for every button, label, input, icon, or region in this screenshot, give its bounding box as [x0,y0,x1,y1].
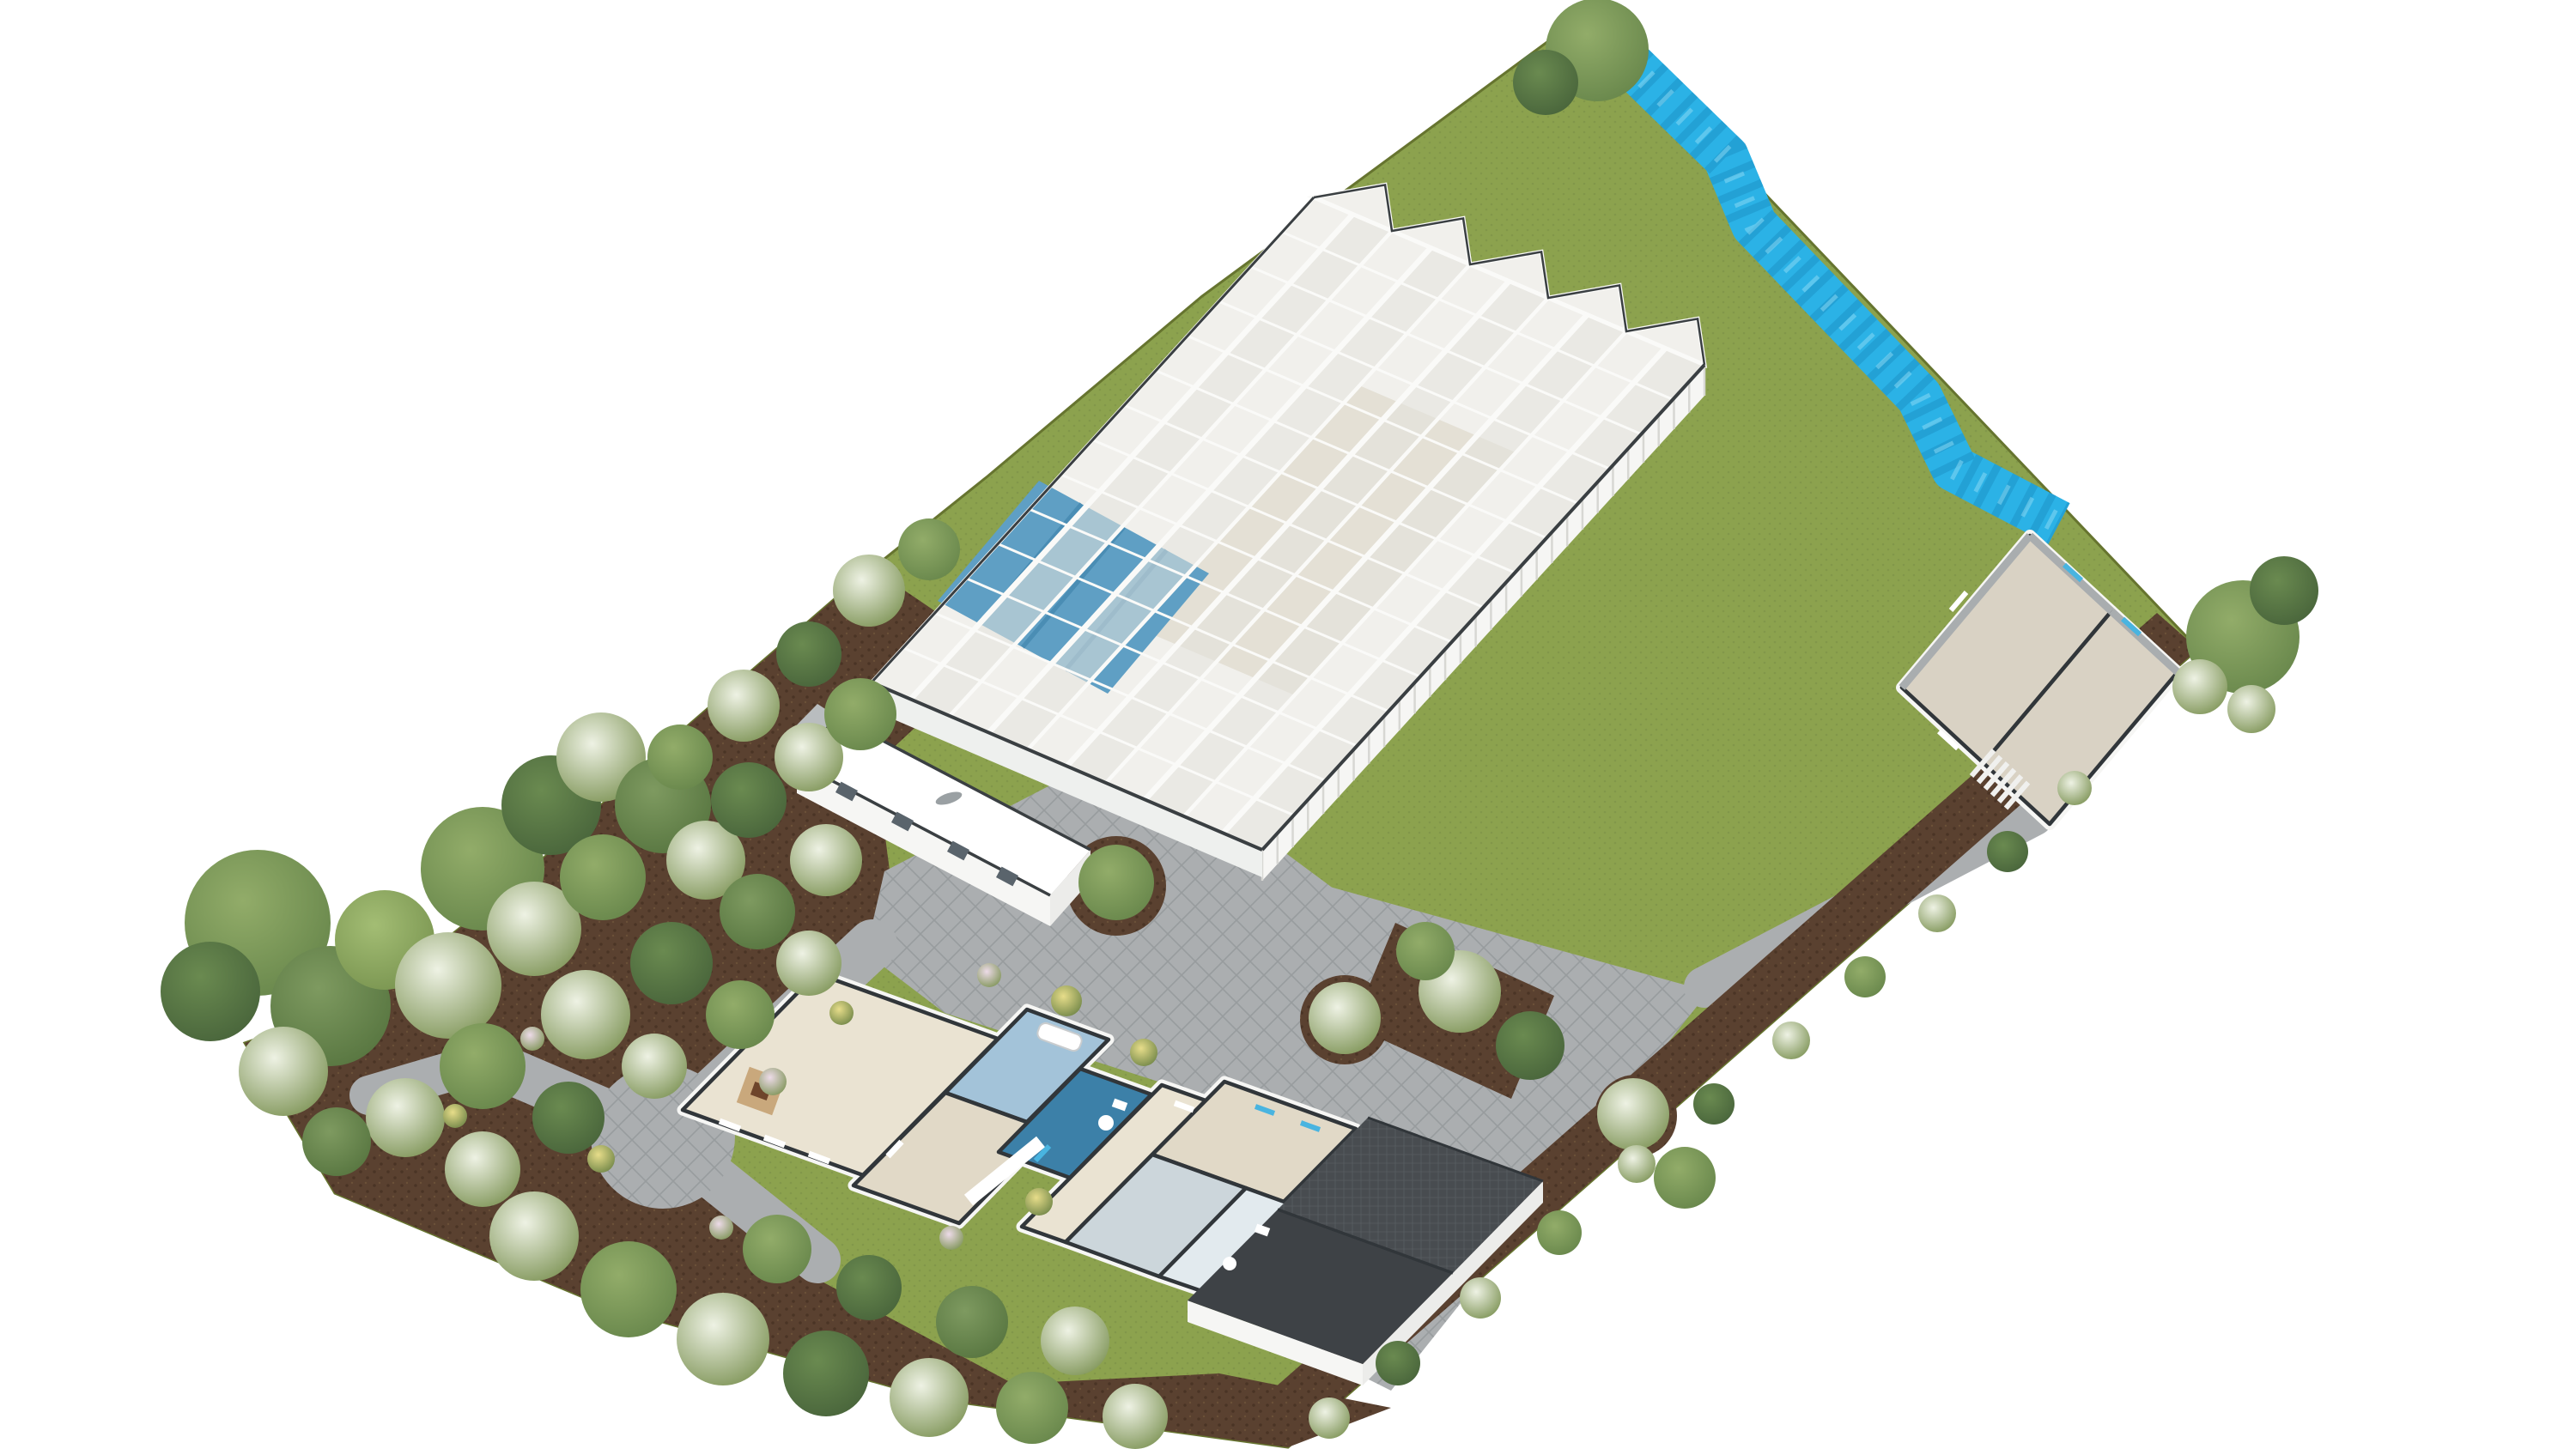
bush [996,1372,1068,1444]
bush [1051,985,1082,1016]
bush [939,1226,963,1250]
bush [708,670,780,742]
bush [1513,50,1578,115]
bush [1460,1277,1501,1319]
bush [2172,659,2227,714]
bush [898,518,960,580]
bush [1537,1210,1582,1255]
bush [1772,1022,1810,1059]
bush [720,874,795,949]
bush [890,1358,969,1437]
tree [395,932,501,1039]
bush [1618,1145,1656,1183]
bush [1025,1188,1053,1216]
bush [2227,685,2275,733]
bush [824,678,896,750]
bush [1309,1397,1350,1439]
bush [2250,556,2318,625]
bush [366,1078,445,1157]
bush [829,1001,854,1025]
bush [936,1286,1008,1358]
bush [1654,1147,1716,1209]
bush [776,931,841,996]
bush [532,1082,605,1154]
bush [1309,982,1381,1054]
bush [706,980,775,1049]
tree [580,1241,677,1337]
bush [709,1216,733,1240]
bush [790,824,862,896]
bush [541,970,630,1059]
bush [1918,894,1956,932]
bush [520,1027,544,1051]
bush [239,1027,328,1116]
bush [1376,1341,1420,1385]
bush [711,762,787,838]
bush [759,1068,787,1095]
bush [1078,845,1154,920]
bush [1987,831,2028,872]
bush [1496,1011,1564,1080]
tree [161,942,260,1041]
bush [1693,1083,1735,1125]
bush [440,1023,526,1109]
bush [977,963,1001,987]
bush [836,1255,902,1320]
bush [445,1131,520,1207]
site-render-stage [0,0,2576,1449]
bush [1396,922,1455,980]
bush [1597,1078,1669,1150]
bush [1844,956,1886,997]
bush [2057,771,2092,805]
bush [1130,1039,1157,1066]
bush [833,555,905,627]
bush [622,1034,687,1099]
bush [677,1293,769,1385]
bush [302,1107,371,1176]
bush [489,1191,579,1281]
bush [560,834,646,920]
toilet [1223,1257,1236,1270]
bush [1041,1307,1109,1375]
toilet [1098,1115,1114,1131]
bush [587,1145,615,1173]
bush [743,1215,811,1283]
bush [630,922,713,1004]
bush [443,1104,467,1128]
bush [1103,1384,1168,1449]
bush [647,724,713,790]
bush [776,621,841,687]
bush [783,1331,869,1416]
